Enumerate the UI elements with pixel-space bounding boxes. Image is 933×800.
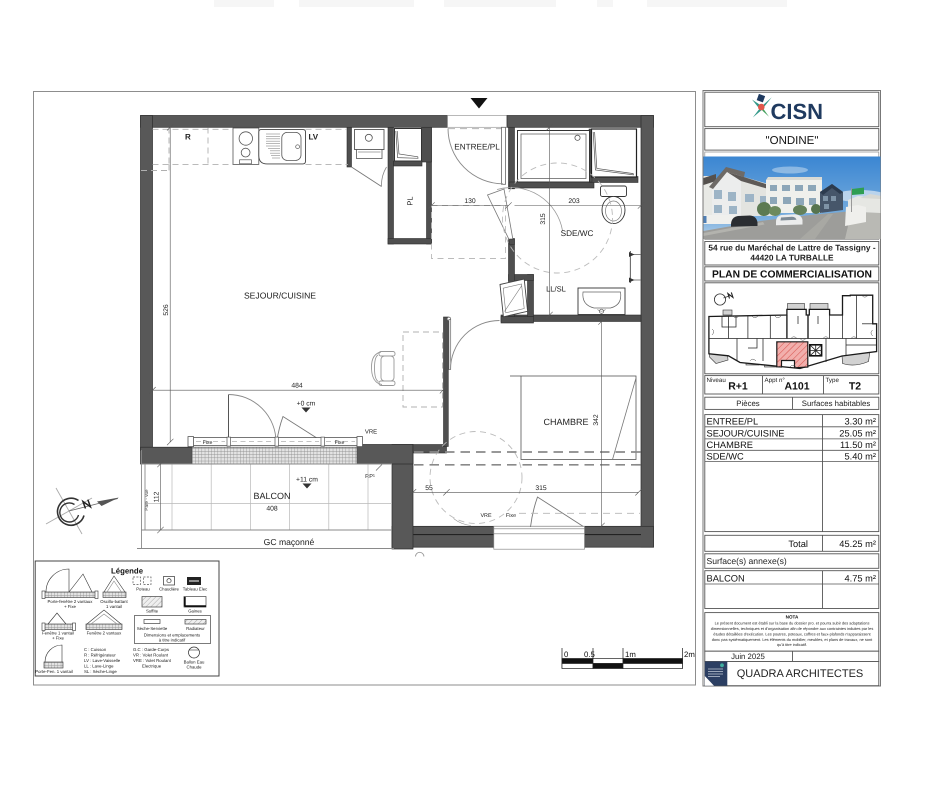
svg-text:Total: Total [788,539,808,549]
svg-text:Soffite: Soffite [146,609,159,614]
svg-text:1 vantail: 1 vantail [106,604,122,609]
svg-text:T2: T2 [849,381,861,393]
svg-text:Légende: Légende [111,567,144,576]
svg-text:Sèche-Serviette: Sèche-Serviette [137,626,168,631]
svg-text:PL: PL [406,196,415,205]
svg-text:VRE: VRE [365,429,377,436]
svg-text:+11 cm: +11 cm [296,477,318,484]
svg-text:Gaines: Gaines [188,609,202,614]
svg-text:315: 315 [535,485,547,492]
svg-text:Fixe: Fixe [335,440,345,446]
svg-text:G.C : Garde-Corps: G.C : Garde-Corps [133,647,169,652]
svg-text:SEJOUR/CUISINE: SEJOUR/CUISINE [707,428,785,438]
svg-text:+ Fixe: + Fixe [52,636,64,641]
svg-text:dimensionnelles, techniques et: dimensionnelles, techniques et d'organis… [711,626,874,631]
svg-text:RP¹: RP¹ [365,474,375,480]
svg-text:Surfaces habitables: Surfaces habitables [802,399,871,408]
svg-text:0.5: 0.5 [584,650,596,659]
svg-text:BALCON: BALCON [253,491,290,501]
svg-text:54 rue du Maréchal de Lattre d: 54 rue du Maréchal de Lattre de Tassigny… [708,243,875,253]
svg-text:Type: Type [826,377,840,384]
svg-text:Niveau: Niveau [707,377,727,384]
svg-text:484: 484 [291,383,303,390]
svg-text:"ONDINE": "ONDINE" [766,135,819,147]
svg-text:Porte-Fen. 1 vantail: Porte-Fen. 1 vantail [35,669,73,674]
svg-text:Appt n°: Appt n° [765,377,786,384]
svg-text:315: 315 [540,213,547,225]
svg-text:342: 342 [593,414,600,426]
svg-text:LV : Lave-Vaisselle: LV : Lave-Vaisselle [84,658,121,663]
svg-text:1m: 1m [625,650,636,659]
svg-text:Pare - vue: Pare - vue [144,489,149,511]
svg-text:Pièces: Pièces [736,399,760,408]
svg-text:Poteau: Poteau [136,587,150,592]
svg-text:Le présent document est établi: Le présent document est établi sur la ba… [715,621,870,626]
svg-text:VRE: VRE [480,513,491,519]
svg-text:donc pas systématiquement. Les: donc pas systématiquement. Les éléments … [712,637,873,642]
svg-text:2m: 2m [684,650,695,659]
svg-text:3.30 m²: 3.30 m² [844,416,876,426]
svg-text:études détaillées d'exécution.: études détaillées d'exécution. Les poutr… [713,631,871,636]
svg-text:SL : Sèche-Linge: SL : Sèche-Linge [84,669,117,674]
svg-text:C : Cuisson: C : Cuisson [84,647,107,652]
svg-text:LV: LV [309,133,319,142]
svg-text:GC maçonné: GC maçonné [264,537,315,547]
svg-text:à titre indicatif: à titre indicatif [159,638,186,643]
svg-text:112: 112 [154,491,161,502]
svg-text:25.05 m²: 25.05 m² [839,428,876,438]
svg-text:QUADRA ARCHITECTES: QUADRA ARCHITECTES [737,668,864,680]
svg-text:ENTREE/PL: ENTREE/PL [707,416,759,426]
svg-text:VR : Volet Roulant: VR : Volet Roulant [133,653,169,658]
svg-text:408: 408 [266,506,278,513]
svg-text:130: 130 [464,198,476,205]
svg-text:SDE/WC: SDE/WC [561,229,594,238]
svg-text:R : Réfrigérateur: R : Réfrigérateur [84,653,116,658]
svg-text:4.75 m²: 4.75 m² [844,573,876,583]
svg-text:SDE/WC: SDE/WC [707,451,744,461]
svg-text:LL/SL: LL/SL [546,285,566,294]
svg-text:Electrique: Electrique [142,664,162,669]
svg-text:Radiateur: Radiateur [186,626,205,631]
svg-text:0: 0 [564,650,569,659]
svg-text:CHAMBRE: CHAMBRE [707,440,754,450]
svg-text:Tableau Elec: Tableau Elec [183,587,208,592]
svg-text:Fenêtre 2 vantaux: Fenêtre 2 vantaux [87,631,122,636]
svg-text:CISN: CISN [771,99,824,124]
svg-text:+0 cm: +0 cm [297,401,316,408]
svg-text:44420 LA TURBALLE: 44420 LA TURBALLE [750,253,834,263]
svg-text:5.40 m²: 5.40 m² [844,451,876,461]
svg-text:Fixe: Fixe [506,513,516,519]
svg-text:A101: A101 [784,381,809,393]
svg-text:Chaude: Chaude [186,665,202,670]
svg-text:BALCON: BALCON [707,573,745,583]
svg-text:Chaudière: Chaudière [159,587,179,592]
svg-text:R: R [185,133,191,142]
svg-text:VRE : Volet Roulant: VRE : Volet Roulant [133,658,172,663]
svg-text:Surface(s) annexe(s): Surface(s) annexe(s) [707,556,787,566]
svg-text:+ Fixe: + Fixe [64,604,76,609]
svg-text:45.25 m²: 45.25 m² [839,539,876,549]
svg-text:R+1: R+1 [728,381,748,393]
svg-text:PLAN DE COMMERCIALISATION: PLAN DE COMMERCIALISATION [712,269,872,280]
svg-text:NOTA: NOTA [786,615,799,620]
svg-text:SEJOUR/CUISINE: SEJOUR/CUISINE [244,291,316,301]
svg-text:qu'à titre indicatif.: qu'à titre indicatif. [777,642,807,647]
svg-text:55: 55 [425,485,433,492]
svg-text:CHAMBRE: CHAMBRE [543,417,588,427]
svg-text:203: 203 [568,198,580,205]
svg-text:Juin 2025: Juin 2025 [731,652,765,661]
svg-text:526: 526 [163,304,170,316]
svg-text:LL : Lave-Linge: LL : Lave-Linge [84,664,114,669]
svg-text:Fixe: Fixe [203,440,213,446]
svg-text:11.50 m²: 11.50 m² [840,440,876,450]
svg-text:ENTREE/PL: ENTREE/PL [454,143,500,152]
